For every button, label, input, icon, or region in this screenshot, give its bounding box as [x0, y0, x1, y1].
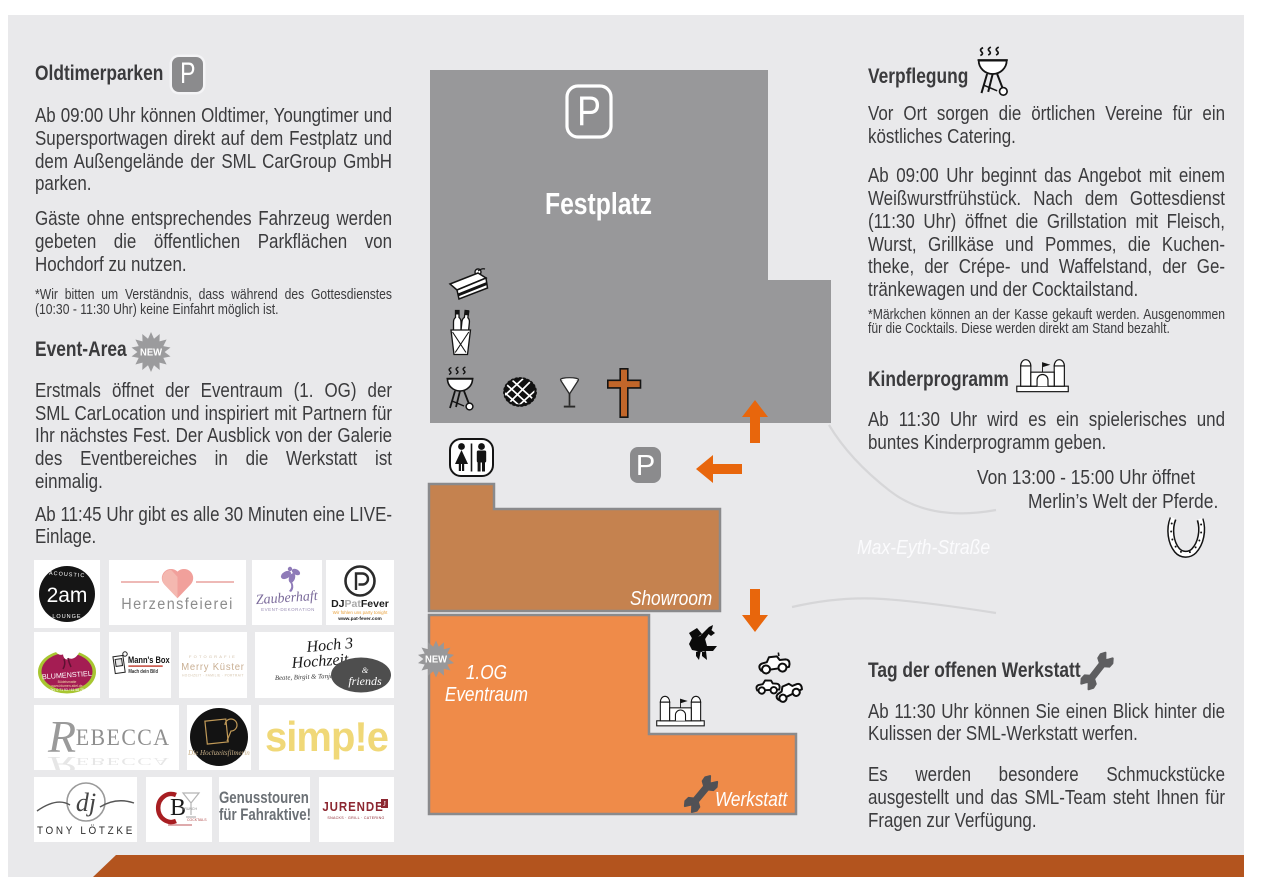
svg-text:Tel. 0 71 53 / 61 58 78: Tel. 0 71 53 / 61 58 78	[50, 688, 84, 692]
svg-text:R: R	[47, 752, 76, 770]
svg-text:COCKTAILS: COCKTAILS	[187, 818, 207, 822]
svg-text:friends: friends	[348, 674, 382, 688]
svg-text:TONY LÖTZKE: TONY LÖTZKE	[37, 825, 135, 838]
svg-text:EBECCA: EBECCA	[76, 724, 171, 750]
svg-text:J: J	[383, 800, 386, 808]
svg-text:EBECCA: EBECCA	[76, 756, 171, 768]
svg-text:P: P	[636, 450, 655, 482]
svg-text:SNACKS · GRILL · CATERING: SNACKS · GRILL · CATERING	[327, 816, 384, 820]
svg-text:Beate, Birgit & Tanja: Beate, Birgit & Tanja	[275, 673, 334, 682]
svg-text:NEW: NEW	[140, 347, 163, 359]
svg-text:BRUNCH: BRUNCH	[182, 807, 197, 811]
svg-text:dj: dj	[76, 788, 96, 817]
svg-text:EVENT-DEKORATION: EVENT-DEKORATION	[261, 607, 315, 612]
svg-text:2am: 2am	[47, 584, 88, 607]
svg-text:Mach dein Bild: Mach dein Bild	[128, 669, 158, 676]
svg-text:JURENDE: JURENDE	[322, 800, 383, 815]
svg-text:HOCHZEIT · FAMILIE · PORTRAIT: HOCHZEIT · FAMILIE · PORTRAIT	[182, 674, 244, 678]
svg-text:www.pat-fever.com: www.pat-fever.com	[337, 616, 382, 622]
svg-text:FOTOGRAFIE: FOTOGRAFIE	[189, 654, 237, 659]
svg-text:DJPatFever: DJPatFever	[331, 598, 389, 610]
svg-text:P: P	[577, 88, 601, 134]
svg-text:LOUNGE: LOUNGE	[52, 614, 81, 620]
svg-text:Mann's Box: Mann's Box	[128, 654, 170, 665]
svg-text:Merry Küster: Merry Küster	[181, 662, 244, 673]
svg-text:Wir fühlen uns party tonight: Wir fühlen uns party tonight	[333, 610, 389, 615]
svg-text:Zauberhaft: Zauberhaft	[255, 589, 319, 608]
svg-text:Die Hochzeitsfilmerin: Die Hochzeitsfilmerin	[187, 749, 250, 757]
